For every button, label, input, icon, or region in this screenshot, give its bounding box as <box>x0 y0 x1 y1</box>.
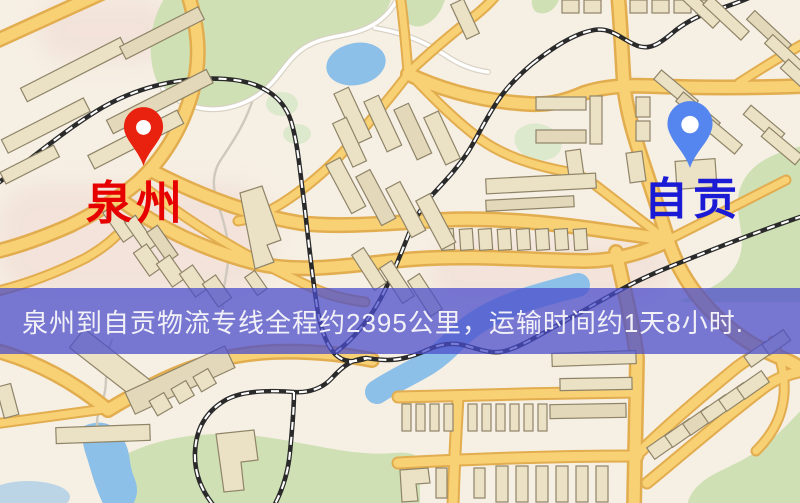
logistics-route-map: 泉州 自贡 泉州到自贡物流专线全程约2395公里，运输时间约1天8小时. <box>0 0 800 503</box>
route-info-text: 泉州到自贡物流专线全程约2395公里，运输时间约1天8小时. <box>22 303 744 340</box>
origin-city-label: 泉州 <box>86 181 186 227</box>
route-info-banner: 泉州到自贡物流专线全程约2395公里，运输时间约1天8小时. <box>0 288 800 354</box>
map-canvas <box>0 0 800 503</box>
destination-city-label: 自贡 <box>644 178 742 222</box>
